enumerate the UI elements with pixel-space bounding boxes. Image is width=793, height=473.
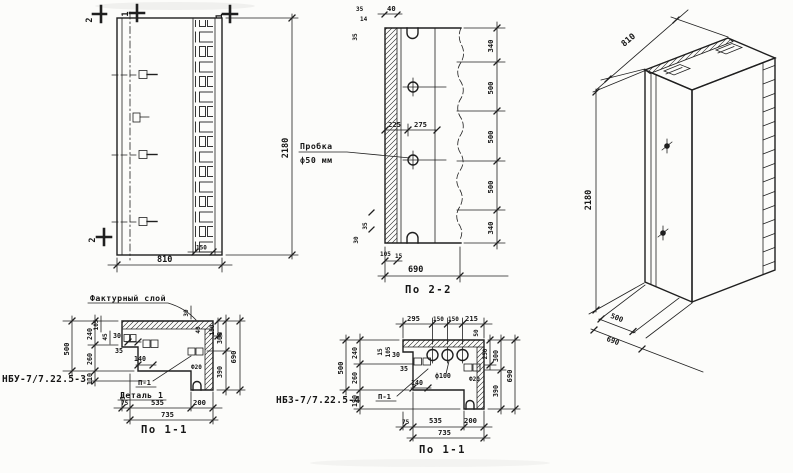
dim-width-690: 690 bbox=[408, 265, 423, 275]
dim-200-bottom: 200 bbox=[193, 398, 206, 407]
dim-chain-500a: 500 bbox=[486, 82, 495, 95]
section-marker-1-right: 1 bbox=[215, 13, 225, 18]
dim-axon-810: 810 bbox=[620, 32, 638, 50]
front-view: 2 1 1 2 810 150 2180 bbox=[85, 5, 298, 272]
dim-105-small: 105 bbox=[385, 346, 392, 357]
dim-75-bottom: 75 bbox=[121, 400, 129, 407]
dim-width-810: 810 bbox=[157, 255, 172, 265]
dim-chain-340a: 340 bbox=[486, 40, 495, 53]
dim-axon-500: 500 bbox=[609, 311, 624, 324]
dim-150-right: 150 bbox=[209, 324, 216, 335]
keyway-notch bbox=[466, 401, 474, 410]
dim-35-small: 35 bbox=[400, 365, 408, 373]
dim-35-top: 35 bbox=[356, 6, 364, 13]
dim-35-left: 35 bbox=[352, 33, 359, 41]
dim-260: 260 bbox=[86, 353, 94, 365]
dim-300-right: 300 bbox=[492, 350, 500, 362]
dim-105-small: 105 bbox=[93, 319, 100, 330]
dim-height-2180: 2180 bbox=[281, 138, 291, 158]
plan-view-block-3: Ф20 П-1 Деталь 1 Фактурный слой НБУ-7/7.… bbox=[2, 293, 245, 436]
dim-500-left: 500 bbox=[336, 362, 345, 375]
section-marker-2-side: 2 bbox=[88, 237, 98, 242]
dim-535-bottom: 535 bbox=[429, 416, 442, 425]
dim-30-bottom: 30 bbox=[353, 236, 360, 244]
dim-225: 225 bbox=[388, 120, 401, 129]
section-markers: 2 1 1 2 bbox=[85, 5, 237, 245]
section-marker-2-top: 2 bbox=[85, 17, 95, 22]
part-mark: НБЗ-7/7.22.5-4 bbox=[276, 395, 360, 406]
dim-295-top: 295 bbox=[407, 314, 420, 323]
dim-15-small: 15 bbox=[377, 348, 384, 356]
dim-30-small: 30 bbox=[113, 332, 121, 340]
dim-chain-500b: 500 bbox=[486, 131, 495, 144]
dim-735-bottom: 735 bbox=[161, 410, 174, 419]
dim-200-bottom: 200 bbox=[464, 416, 477, 425]
p1-label: П-1 bbox=[378, 392, 391, 401]
anchor-f20: Ф20 bbox=[469, 376, 480, 383]
dim-275: 275 bbox=[414, 120, 427, 129]
dim-75-bottom: 75 bbox=[402, 419, 410, 426]
plug-callout-line1: Пробка bbox=[300, 141, 333, 151]
dim-150b-top: 150 bbox=[448, 316, 459, 323]
dim-chain-340b: 340 bbox=[486, 222, 495, 235]
dim-500-left: 500 bbox=[62, 343, 71, 356]
dim-215-top: 215 bbox=[465, 314, 478, 323]
part-mark: НБУ-7/7.22.5-3 bbox=[2, 374, 86, 385]
dim-690-right: 690 bbox=[229, 351, 238, 364]
dim-45-small: 45 bbox=[102, 333, 109, 341]
dim-140-small: 140 bbox=[411, 379, 423, 387]
dim-190: 190 bbox=[351, 395, 359, 407]
dim-690-right: 690 bbox=[505, 370, 514, 383]
dim-axon-2180: 2180 bbox=[584, 190, 594, 210]
dim-14-top: 14 bbox=[360, 16, 368, 23]
dim-35-small: 35 bbox=[115, 347, 123, 355]
vent-holes bbox=[427, 347, 468, 363]
view-title-1-1-mid: По 1-1 bbox=[419, 444, 466, 456]
brick-strip bbox=[195, 20, 213, 254]
anchor-f20: Ф20 bbox=[191, 364, 202, 371]
drawing-sheet: 2 1 1 2 810 150 2180 35 bbox=[0, 0, 793, 473]
dim-strip-150: 150 bbox=[196, 245, 207, 252]
dim-35-bottom: 35 bbox=[362, 222, 369, 230]
dim-150a-top: 150 bbox=[433, 316, 444, 323]
section-marker-1-top: 1 bbox=[121, 11, 131, 16]
dim-240: 240 bbox=[351, 347, 359, 359]
broken-edge bbox=[457, 28, 464, 241]
dim-chain-500c: 500 bbox=[486, 181, 495, 194]
dim-535-bottom: 535 bbox=[151, 398, 164, 407]
facing-callout: Фактурный слой bbox=[90, 293, 166, 303]
hole-diameter-label: ф100 bbox=[435, 372, 451, 380]
dim-250-right: 250 bbox=[482, 348, 489, 359]
facing-layer bbox=[385, 28, 397, 243]
keyway-notch bbox=[193, 382, 201, 391]
dim-40-top: 40 bbox=[387, 4, 396, 13]
dim-40-right: 40 bbox=[195, 326, 202, 334]
dim-30-small: 30 bbox=[392, 351, 400, 359]
face-plug-marks bbox=[658, 139, 672, 240]
paper-smudge bbox=[310, 459, 550, 467]
plug-callout-line2: ф50 мм bbox=[300, 155, 333, 165]
dim-390-right: 390 bbox=[216, 366, 224, 378]
facing-return bbox=[205, 329, 213, 390]
dim-140-small: 140 bbox=[134, 355, 146, 363]
dim-15: 15 bbox=[395, 253, 403, 260]
axonometric-view: 810 2180 500 690 bbox=[584, 10, 775, 372]
section-view-2-2: 35 14 40 35 225 275 340 500 500 500 340 … bbox=[299, 4, 508, 296]
dim-110: 110 bbox=[86, 373, 94, 385]
view-title-1-1-left: По 1-1 bbox=[141, 424, 188, 436]
drawing-canvas: 2 1 1 2 810 150 2180 35 bbox=[0, 0, 793, 473]
dim-300-right: 300 bbox=[216, 332, 224, 344]
dim-390-right: 390 bbox=[492, 385, 500, 397]
embed-marks bbox=[112, 71, 157, 226]
dim-735-bottom: 735 bbox=[438, 428, 451, 437]
dim-30-right: 30 bbox=[183, 309, 190, 317]
dim-260: 260 bbox=[351, 372, 359, 384]
facing-layer bbox=[403, 340, 484, 347]
plan-view-block-4: ф100 Ф20 П-1 НБЗ-7/7.22.5-4 295 150 150 … bbox=[276, 314, 520, 456]
view-title-2-2: По 2-2 bbox=[405, 284, 452, 296]
facing-layer-edge bbox=[651, 73, 656, 287]
dim-105: 105 bbox=[380, 251, 391, 258]
p1-label: П-1 bbox=[138, 378, 151, 387]
dim-50-top: 50 bbox=[473, 329, 480, 337]
dim-axon-690: 690 bbox=[605, 334, 620, 347]
